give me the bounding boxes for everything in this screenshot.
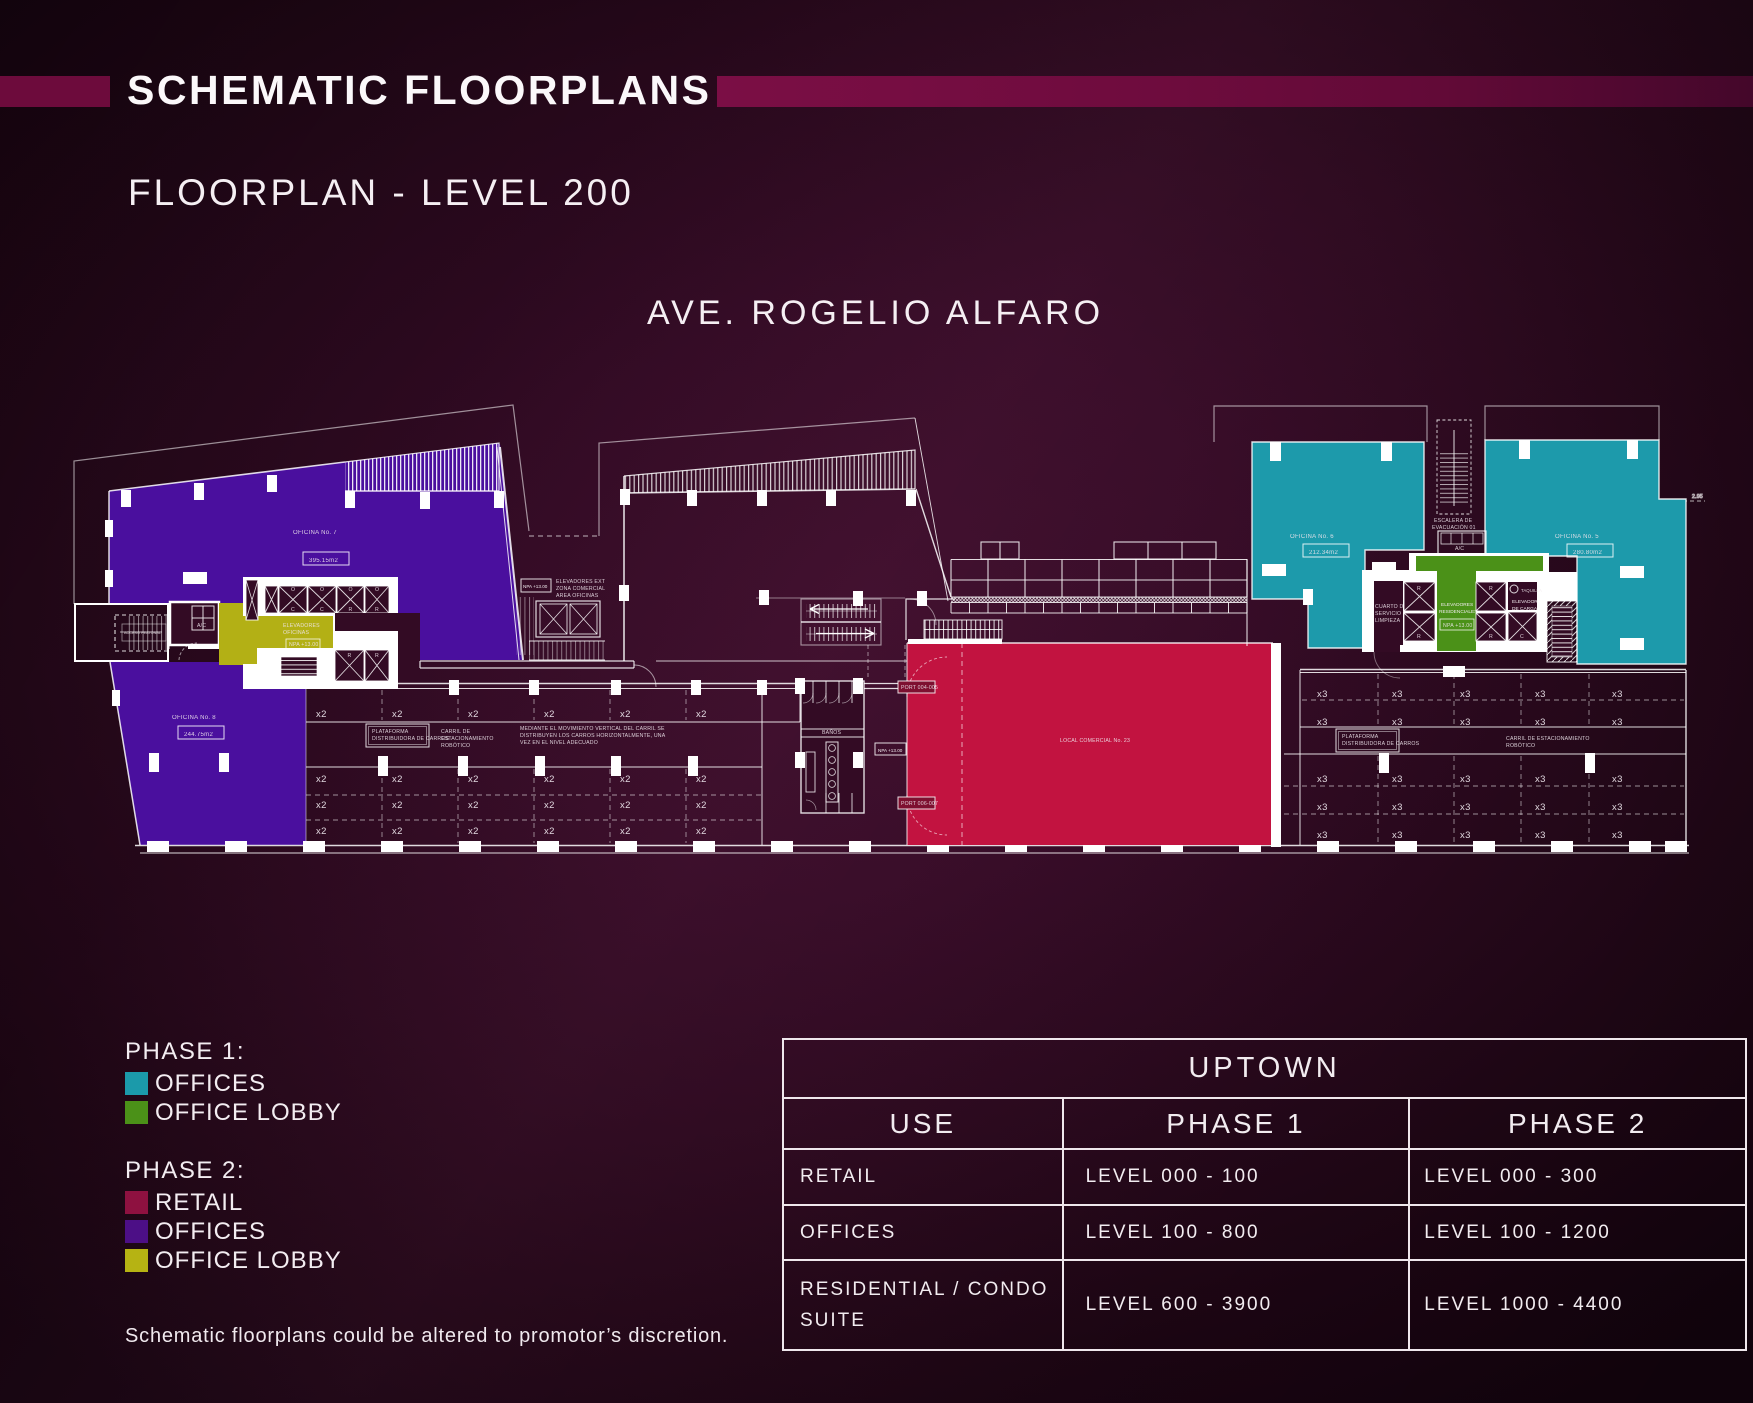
svg-text:x2: x2 xyxy=(468,826,479,837)
svg-text:C: C xyxy=(291,607,295,613)
svg-text:R: R xyxy=(348,653,352,659)
svg-text:x2: x2 xyxy=(620,800,631,811)
svg-text:244.75m2: 244.75m2 xyxy=(184,732,213,738)
svg-text:DISTRIBUYEN LOS CARROS HORIZON: DISTRIBUYEN LOS CARROS HORIZONTALMENTE, … xyxy=(520,733,666,739)
svg-text:ROBÓTICO: ROBÓTICO xyxy=(1506,742,1535,749)
svg-text:SERVICIO Y: SERVICIO Y xyxy=(1375,611,1407,617)
svg-text:DE CARGA: DE CARGA xyxy=(1512,606,1538,612)
svg-text:TAQUILLA: TAQUILLA xyxy=(1521,588,1542,593)
svg-text:280.80m2: 280.80m2 xyxy=(1573,550,1602,556)
svg-text:OFICINA No. 7: OFICINA No. 7 xyxy=(293,530,337,536)
svg-text:x3: x3 xyxy=(1317,774,1328,785)
svg-text:x3: x3 xyxy=(1317,717,1328,728)
svg-text:x3: x3 xyxy=(1392,802,1403,813)
svg-text:x3: x3 xyxy=(1535,774,1546,785)
svg-text:ZONA COMERCIAL: ZONA COMERCIAL xyxy=(556,586,605,592)
svg-text:A/C: A/C xyxy=(1455,546,1464,552)
svg-text:x2: x2 xyxy=(316,800,327,811)
svg-text:R: R xyxy=(1417,634,1421,640)
svg-text:BAÑOS: BAÑOS xyxy=(822,729,842,736)
svg-text:ELEVADORES EXT: ELEVADORES EXT xyxy=(556,579,606,585)
svg-text:R: R xyxy=(375,607,379,613)
svg-text:x2: x2 xyxy=(696,709,707,720)
svg-text:x3: x3 xyxy=(1535,802,1546,813)
svg-text:x3: x3 xyxy=(1317,689,1328,700)
svg-text:R: R xyxy=(1489,634,1493,640)
svg-text:x2: x2 xyxy=(468,800,479,811)
svg-text:ROBÓTICO: ROBÓTICO xyxy=(441,742,470,749)
svg-text:ELEVADORES: ELEVADORES xyxy=(1441,602,1473,608)
svg-text:NPA +13.00: NPA +13.00 xyxy=(523,584,548,589)
svg-text:x3: x3 xyxy=(1612,774,1623,785)
svg-text:ESCALERA DE: ESCALERA DE xyxy=(1434,518,1473,524)
svg-text:x3: x3 xyxy=(1612,717,1623,728)
svg-text:OFICINA No. 6: OFICINA No. 6 xyxy=(1290,534,1334,540)
svg-text:x2: x2 xyxy=(316,709,327,720)
svg-text:x2: x2 xyxy=(468,709,479,720)
svg-text:x2: x2 xyxy=(620,826,631,837)
svg-text:RESIDENCIALES: RESIDENCIALES xyxy=(1439,609,1477,615)
svg-text:OFICINA No. 8: OFICINA No. 8 xyxy=(172,715,216,721)
svg-text:x3: x3 xyxy=(1612,802,1623,813)
svg-text:x2: x2 xyxy=(316,826,327,837)
svg-text:x3: x3 xyxy=(1392,717,1403,728)
svg-text:PORT 006-007: PORT 006-007 xyxy=(901,801,938,807)
svg-text:NPA +13.00: NPA +13.00 xyxy=(1443,623,1472,629)
svg-text:x3: x3 xyxy=(1392,689,1403,700)
svg-text:LOCAL COMERCIAL No. 23: LOCAL COMERCIAL No. 23 xyxy=(1060,738,1130,744)
svg-text:O: O xyxy=(349,587,353,593)
svg-text:x2: x2 xyxy=(544,800,555,811)
svg-text:EVACUACIÓN 01: EVACUACIÓN 01 xyxy=(1432,524,1476,531)
svg-text:x3: x3 xyxy=(1535,717,1546,728)
svg-text:PLATAFORMA: PLATAFORMA xyxy=(1342,734,1379,740)
svg-text:x3: x3 xyxy=(1535,830,1546,841)
svg-text:x2: x2 xyxy=(544,826,555,837)
svg-text:R: R xyxy=(1489,586,1493,592)
svg-text:O: O xyxy=(375,587,379,593)
svg-text:VEZ EN EL NIVEL ADECUADO: VEZ EN EL NIVEL ADECUADO xyxy=(520,740,598,746)
svg-text:C: C xyxy=(320,607,324,613)
svg-text:x3: x3 xyxy=(1460,802,1471,813)
svg-text:NPA +13.00: NPA +13.00 xyxy=(289,642,318,648)
svg-text:x3: x3 xyxy=(1392,830,1403,841)
svg-text:R: R xyxy=(1417,586,1421,592)
svg-text:212.34m2: 212.34m2 xyxy=(1309,550,1338,556)
svg-text:x2: x2 xyxy=(696,826,707,837)
svg-text:x2: x2 xyxy=(620,774,631,785)
svg-text:AREA OFICINAS: AREA OFICINAS xyxy=(556,593,599,599)
svg-text:x2: x2 xyxy=(392,774,403,785)
svg-text:NPA +13.00: NPA +13.00 xyxy=(878,748,903,753)
svg-text:OFICINAS: OFICINAS xyxy=(283,630,309,636)
svg-text:x2: x2 xyxy=(392,709,403,720)
svg-text:x3: x3 xyxy=(1317,830,1328,841)
svg-text:R: R xyxy=(349,607,353,613)
svg-text:A/C: A/C xyxy=(197,623,206,629)
svg-text:C: C xyxy=(1520,634,1524,640)
svg-text:x2: x2 xyxy=(544,709,555,720)
svg-text:x2: x2 xyxy=(544,774,555,785)
svg-text:x3: x3 xyxy=(1612,689,1623,700)
svg-text:CARRIL DE: CARRIL DE xyxy=(441,729,471,735)
svg-text:x2: x2 xyxy=(696,800,707,811)
svg-text:PLATAFORMA: PLATAFORMA xyxy=(372,729,409,735)
svg-text:PORT 004-005: PORT 004-005 xyxy=(901,685,938,691)
svg-text:395.15m2: 395.15m2 xyxy=(309,558,338,564)
svg-text:MEDIANTE EL MOVIMIENTO VERTICA: MEDIANTE EL MOVIMIENTO VERTICAL DEL CARR… xyxy=(520,726,665,732)
svg-text:CARRIL DE ESTACIONAMIENTO: CARRIL DE ESTACIONAMIENTO xyxy=(1506,736,1590,742)
svg-text:x2: x2 xyxy=(620,709,631,720)
svg-text:DISTRIBUIDORA DE CARROS: DISTRIBUIDORA DE CARROS xyxy=(372,736,450,742)
svg-text:ELEVADOR: ELEVADOR xyxy=(1512,599,1538,605)
svg-text:OFICINA No. 5: OFICINA No. 5 xyxy=(1555,534,1599,540)
svg-text:x3: x3 xyxy=(1392,774,1403,785)
svg-text:ESTACIONAMIENTO: ESTACIONAMIENTO xyxy=(441,736,494,742)
svg-text:x3: x3 xyxy=(1460,774,1471,785)
svg-text:x2: x2 xyxy=(392,800,403,811)
svg-text:x2: x2 xyxy=(468,774,479,785)
svg-text:x3: x3 xyxy=(1612,830,1623,841)
svg-text:R: R xyxy=(375,653,379,659)
svg-text:DISTRIBUIDORA DE CARROS: DISTRIBUIDORA DE CARROS xyxy=(1342,741,1420,747)
svg-text:LIMPIEZA: LIMPIEZA xyxy=(1375,618,1401,624)
svg-text:2.95: 2.95 xyxy=(1692,494,1703,500)
svg-text:x2: x2 xyxy=(392,826,403,837)
svg-text:O: O xyxy=(291,587,295,593)
svg-text:x3: x3 xyxy=(1317,802,1328,813)
svg-text:ELEVADORES: ELEVADORES xyxy=(283,623,320,629)
svg-text:x3: x3 xyxy=(1535,689,1546,700)
svg-text:ACCESO PEATONAL: ACCESO PEATONAL xyxy=(124,631,161,635)
svg-text:x3: x3 xyxy=(1460,830,1471,841)
svg-text:x2: x2 xyxy=(316,774,327,785)
svg-text:CUARTO DE: CUARTO DE xyxy=(1375,604,1408,610)
svg-text:x3: x3 xyxy=(1460,689,1471,700)
svg-text:O: O xyxy=(320,587,324,593)
svg-text:x3: x3 xyxy=(1460,717,1471,728)
